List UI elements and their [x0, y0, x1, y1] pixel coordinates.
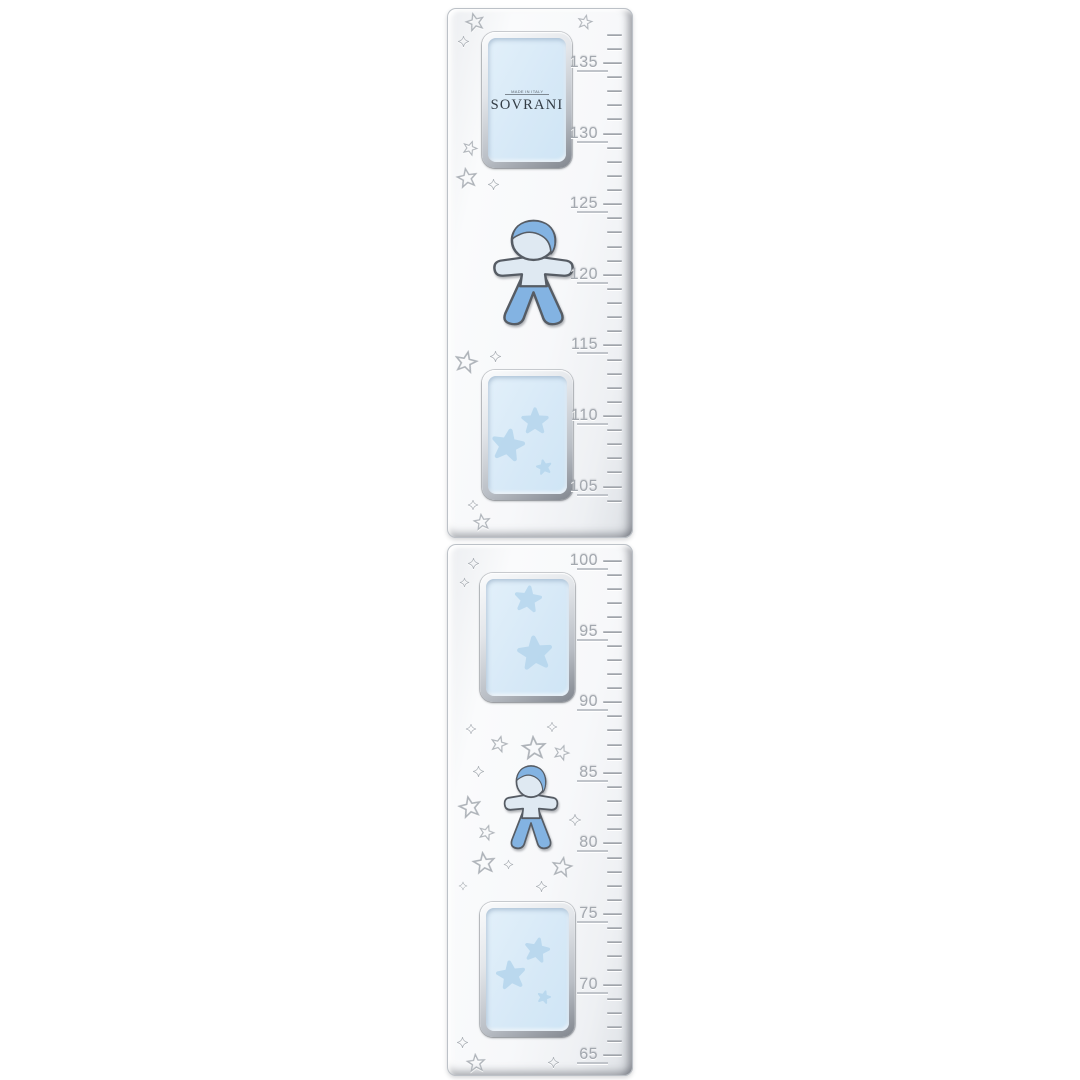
ruler-tick-minor [607, 316, 622, 318]
ruler-tick-minor [607, 814, 622, 816]
ruler-label-underline [577, 709, 608, 711]
ruler-tick-minor [607, 161, 622, 163]
ruler-tick-major [603, 1054, 622, 1056]
ruler-tick-minor [607, 1026, 622, 1028]
ruler-tick-minor [607, 76, 622, 78]
ruler-tick-major [603, 274, 622, 276]
ruler-label-underline [577, 141, 608, 143]
ruler-tick-major [603, 701, 622, 703]
photo-frame-1: MADE IN ITALY SOVRANI [482, 32, 572, 168]
ruler-tick-minor [607, 217, 622, 219]
engraved-star-icon [465, 1052, 487, 1074]
ruler-tick-minor [607, 602, 622, 604]
ruler-tick-minor [607, 34, 622, 36]
engraved-star-icon [549, 854, 574, 879]
ruler-tick-minor [607, 998, 622, 1000]
ruler-tick-major [603, 772, 622, 774]
product-photo-growth-chart: MADE IN ITALY SOVRANI 135130125120115110… [0, 0, 1080, 1080]
ruler-tick-minor [607, 246, 622, 248]
ruler-label-underline [577, 211, 608, 213]
ruler-tick-major [603, 133, 622, 135]
ruler-tick-minor [607, 969, 622, 971]
sparkle-star-icon [547, 1056, 560, 1069]
blue-star-icon [535, 988, 552, 1005]
engraved-star-icon [454, 165, 479, 190]
ruler-label: 105 [570, 478, 598, 496]
chart-lower-section: 10095908580757065 [447, 544, 633, 1076]
ruler-label: 100 [570, 552, 598, 570]
ruler-tick-major [603, 203, 622, 205]
ruler-tick-minor [607, 758, 622, 760]
ruler-tick-minor [607, 1040, 622, 1042]
ruler-label-underline [577, 282, 608, 284]
ruler-label: 90 [579, 693, 598, 711]
ruler-tick-minor [607, 48, 622, 50]
ruler-tick-minor [607, 871, 622, 873]
ruler-tick-minor [607, 744, 622, 746]
ruler-tick-minor [607, 588, 622, 590]
sparkle-star-icon [568, 813, 582, 827]
ruler-tick-minor [607, 118, 622, 120]
engraved-star-icon [476, 822, 497, 843]
ruler-label: 115 [571, 336, 598, 354]
ruler-tick-minor [607, 443, 622, 445]
ruler-label: 125 [570, 195, 598, 213]
ruler-tick-minor [607, 673, 622, 675]
engraved-star-icon [470, 849, 497, 876]
ruler-tick-minor [607, 729, 622, 731]
ruler-tick-minor [607, 147, 622, 149]
blue-star-icon [512, 583, 544, 615]
ruler-label: 65 [579, 1046, 598, 1064]
sparkle-star-icon [535, 880, 548, 893]
sparkle-star-icon [472, 765, 485, 778]
ruler-label: 135 [570, 54, 598, 72]
ruler-tick-minor [607, 429, 622, 431]
ruler-tick-major [603, 631, 622, 633]
engraved-star-icon [520, 734, 548, 762]
photo-frame-3 [480, 573, 575, 702]
photo-frame-2 [482, 370, 573, 500]
ruler-label: 70 [579, 976, 598, 994]
brand-origin: MADE IN ITALY [511, 89, 543, 94]
ruler-tick-major [603, 913, 622, 915]
ruler-tick-minor [607, 885, 622, 887]
sparkle-star-icon [467, 557, 480, 570]
engraved-star-icon [488, 733, 510, 755]
ruler-label-underline [577, 921, 608, 923]
ruler-tick-major [603, 560, 622, 562]
blue-star-icon [535, 458, 554, 477]
ruler-tick-major [603, 486, 622, 488]
ruler-tick-minor [607, 786, 622, 788]
ruler-label-underline [577, 568, 608, 570]
ruler-label-underline [577, 780, 608, 782]
ruler-label: 85 [579, 764, 598, 782]
sparkle-star-icon [457, 35, 470, 48]
ruler-tick-minor [607, 659, 622, 661]
ruler-tick-minor [607, 471, 622, 473]
sparkle-star-icon [546, 721, 558, 733]
ruler-label: 80 [579, 834, 598, 852]
ruler-label-underline [577, 494, 608, 496]
engraved-star-icon [551, 742, 573, 764]
ruler-tick-minor [607, 616, 622, 618]
photo-window-1: MADE IN ITALY SOVRANI [488, 38, 566, 162]
ruler-tick-minor [607, 574, 622, 576]
ruler-label-underline [577, 850, 608, 852]
ruler-tick-minor [607, 927, 622, 929]
ruler-label-underline [577, 1062, 608, 1064]
ruler-tick-minor [607, 104, 622, 106]
blue-star-icon [522, 935, 553, 966]
ruler-tick-major [603, 984, 622, 986]
ruler-tick-minor [607, 90, 622, 92]
sparkle-star-icon [465, 723, 477, 735]
ruler-tick-minor [607, 302, 622, 304]
photo-window-3 [486, 579, 569, 696]
ruler-label: 95 [579, 623, 598, 641]
ruler-label-underline [577, 352, 608, 354]
photo-window-4 [486, 908, 569, 1031]
engraved-star-icon [463, 10, 487, 34]
blue-star-icon [515, 633, 555, 673]
ruler-tick-minor [607, 260, 622, 262]
ruler-tick-major [603, 62, 622, 64]
ruler-tick-minor [607, 457, 622, 459]
ruler-tick-minor [607, 330, 622, 332]
ruler-tick-major [603, 344, 622, 346]
sparkle-star-icon [456, 1036, 469, 1049]
ruler-label: 110 [571, 407, 598, 425]
brand-plate: MADE IN ITALY SOVRANI [488, 38, 566, 162]
ruler-tick-minor [607, 373, 622, 375]
ruler-tick-minor [607, 955, 622, 957]
ruler-tick-minor [607, 899, 622, 901]
engraved-star-icon [472, 512, 492, 532]
ruler-tick-minor [607, 359, 622, 361]
ruler-tick-minor [607, 387, 622, 389]
ruler-label: 130 [570, 125, 598, 143]
ruler-tick-major [603, 842, 622, 844]
sparkle-star-icon [467, 499, 479, 511]
ruler-tick-minor [607, 288, 622, 290]
ruler-tick-minor [607, 175, 622, 177]
ruler-tick-minor [607, 857, 622, 859]
chart-upper-section: MADE IN ITALY SOVRANI 135130125120115110… [447, 8, 633, 538]
sparkle-star-icon [503, 859, 514, 870]
engraved-star-icon [452, 348, 480, 376]
ruler-tick-minor [607, 1012, 622, 1014]
ruler-tick-minor [607, 800, 622, 802]
engraved-star-icon [460, 138, 481, 159]
ruler-label: 75 [579, 905, 598, 923]
ruler-tick-major [603, 415, 622, 417]
ruler-label-underline [577, 992, 608, 994]
ruler-tick-minor [607, 189, 622, 191]
engraved-star-icon [576, 13, 595, 32]
baby-boy-figure [503, 763, 559, 853]
photo-window-2 [488, 376, 567, 494]
ruler-label-underline [577, 423, 608, 425]
ruler-tick-minor [607, 828, 622, 830]
blue-star-icon [494, 958, 528, 992]
ruler-tick-minor [607, 687, 622, 689]
baby-boy-figure [492, 217, 575, 330]
ruler-label-underline [577, 639, 608, 641]
ruler-tick-minor [607, 231, 622, 233]
sparkle-star-icon [458, 881, 468, 891]
blue-star-icon [488, 425, 527, 464]
ruler-tick-minor [607, 941, 622, 943]
ruler-tick-minor [607, 715, 622, 717]
ruler-tick-minor [607, 500, 622, 502]
ruler-tick-minor [607, 645, 622, 647]
brand-name: SOVRANI [491, 97, 564, 114]
sparkle-star-icon [487, 178, 500, 191]
photo-frame-4 [480, 902, 575, 1037]
sparkle-star-icon [489, 350, 502, 363]
ruler-tick-minor [607, 401, 622, 403]
engraved-star-icon [456, 793, 484, 821]
ruler-label-underline [577, 70, 608, 72]
sparkle-star-icon [459, 577, 470, 588]
